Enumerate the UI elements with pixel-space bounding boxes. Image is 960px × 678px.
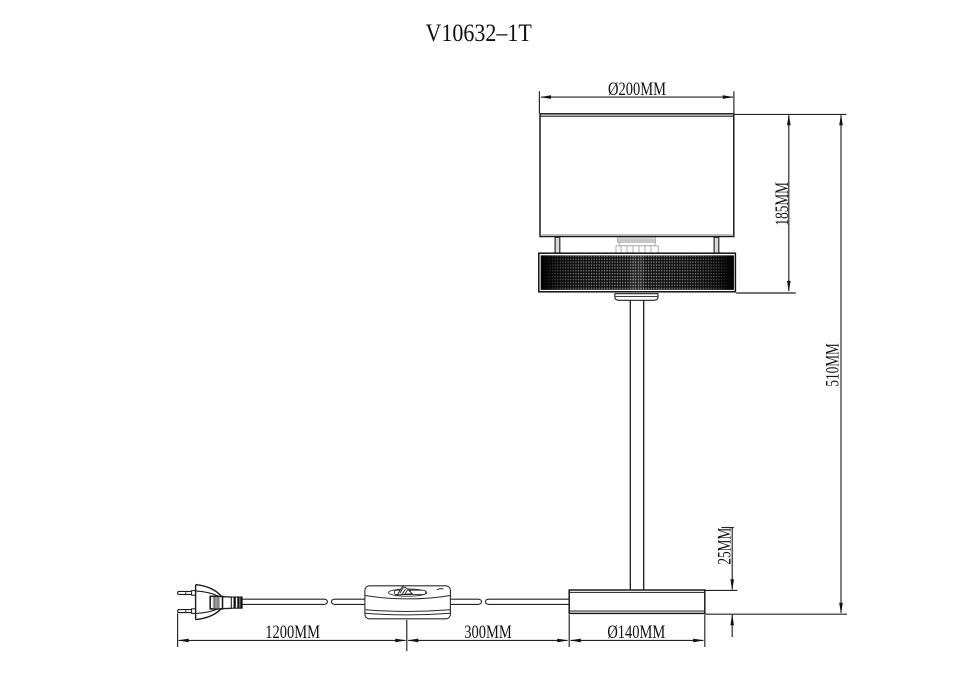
svg-text:185MM: 185MM <box>771 182 793 226</box>
svg-text:25MM: 25MM <box>713 528 735 565</box>
svg-text:510MM: 510MM <box>821 343 843 387</box>
svg-text:Ø140MM: Ø140MM <box>607 621 665 642</box>
svg-text:Ø200MM: Ø200MM <box>608 78 666 99</box>
svg-text:1200MM: 1200MM <box>265 621 320 642</box>
svg-text:V10632–1T: V10632–1T <box>426 20 533 48</box>
svg-text:300MM: 300MM <box>464 621 512 642</box>
